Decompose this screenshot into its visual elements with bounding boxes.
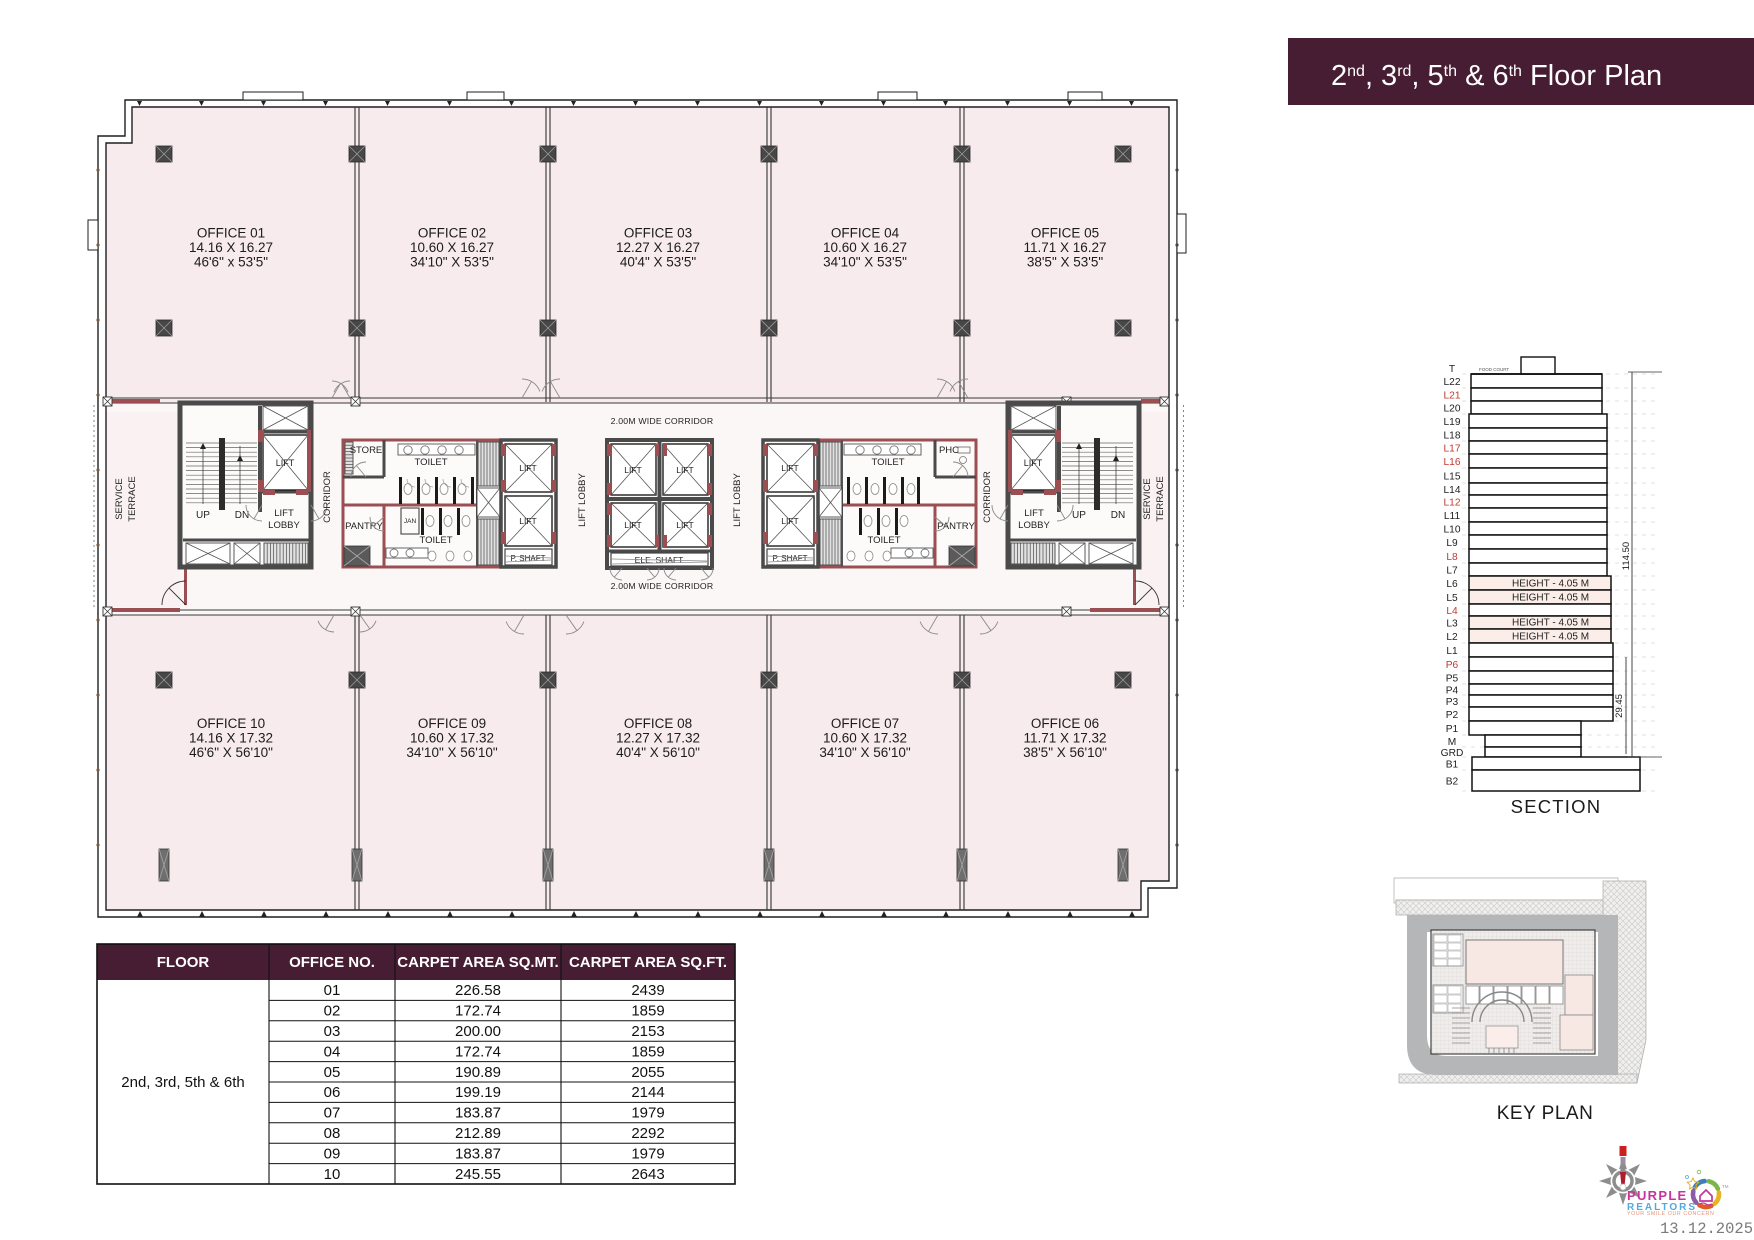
svg-text:SECTION: SECTION [1511,796,1602,817]
svg-text:05: 05 [324,1064,341,1081]
svg-text:STORE: STORE [350,445,383,456]
svg-text:172.74: 172.74 [455,1003,501,1020]
svg-text:TOILET: TOILET [871,457,904,468]
svg-text:40'4" X 53'5": 40'4" X 53'5" [620,255,697,270]
svg-text:TM: TM [1722,1184,1729,1189]
svg-text:T: T [1449,364,1455,375]
svg-text:OFFICE 08: OFFICE 08 [624,716,692,731]
svg-text:TOILET: TOILET [867,535,900,546]
svg-text:TOILET: TOILET [419,535,452,546]
svg-text:LIFT: LIFT [676,465,693,475]
svg-text:HEIGHT - 4.05 M: HEIGHT - 4.05 M [1512,579,1589,590]
svg-text:LIFT: LIFT [274,508,294,519]
svg-text:TOILET: TOILET [414,457,447,468]
svg-text:14.16 X 16.27: 14.16 X 16.27 [189,240,273,255]
svg-text:KEY PLAN: KEY PLAN [1497,1103,1594,1124]
svg-text:10.60 X 17.32: 10.60 X 17.32 [410,731,494,746]
svg-text:11.71 X 17.32: 11.71 X 17.32 [1023,731,1106,746]
svg-text:2292: 2292 [631,1125,664,1142]
svg-text:FOOD COURT: FOOD COURT [1479,367,1509,372]
svg-text:P6: P6 [1446,660,1459,671]
svg-text:HEIGHT - 4.05 M: HEIGHT - 4.05 M [1512,632,1589,643]
svg-text:L17: L17 [1444,444,1461,455]
svg-text:34'10" X 56'10": 34'10" X 56'10" [406,745,498,760]
svg-text:L10: L10 [1444,525,1461,536]
svg-text:CORRIDOR: CORRIDOR [982,471,993,523]
svg-text:LIFT: LIFT [781,516,798,526]
svg-text:P3: P3 [1446,697,1459,708]
svg-text:46'6" x 53'5": 46'6" x 53'5" [194,255,268,270]
svg-text:2144: 2144 [631,1084,664,1101]
svg-text:2.00M WIDE CORRIDOR: 2.00M WIDE CORRIDOR [611,416,714,426]
svg-text:B1: B1 [1446,760,1459,771]
svg-text:OFFICE 09: OFFICE 09 [418,716,486,731]
svg-text:2153: 2153 [631,1023,664,1040]
svg-text:SERVICE: SERVICE [1142,478,1153,520]
svg-text:10.60 X 16.27: 10.60 X 16.27 [823,240,907,255]
svg-text:14.16 X 17.32: 14.16 X 17.32 [189,731,273,746]
svg-text:2.00M WIDE CORRIDOR: 2.00M WIDE CORRIDOR [611,581,714,591]
svg-text:06: 06 [324,1084,341,1101]
svg-text:OFFICE NO.: OFFICE NO. [289,954,375,971]
svg-text:10.60 X 16.27: 10.60 X 16.27 [410,240,494,255]
svg-text:LIFT: LIFT [676,520,693,530]
svg-text:UP: UP [196,510,210,521]
svg-text:OFFICE 07: OFFICE 07 [831,716,899,731]
svg-text:TERRACE: TERRACE [127,476,138,521]
svg-text:08: 08 [324,1125,341,1142]
svg-text:P5: P5 [1446,674,1459,685]
svg-text:12.27 X 17.32: 12.27 X 17.32 [616,731,700,746]
svg-text:LIFT: LIFT [519,463,536,473]
svg-text:OFFICE 01: OFFICE 01 [197,226,265,241]
svg-text:L5: L5 [1446,593,1458,604]
svg-text:CARPET AREA SQ.MT.: CARPET AREA SQ.MT. [397,954,558,971]
svg-text:OFFICE 05: OFFICE 05 [1031,226,1099,241]
svg-text:JAN: JAN [404,518,417,525]
svg-text:LIFT LOBBY: LIFT LOBBY [577,473,588,527]
svg-text:07: 07 [324,1105,341,1122]
svg-text:LIFT: LIFT [519,516,536,526]
svg-text:1979: 1979 [631,1145,664,1162]
svg-text:DN: DN [1111,510,1125,521]
svg-text:1859: 1859 [631,1003,664,1020]
svg-text:LIFT: LIFT [624,520,641,530]
svg-text:L8: L8 [1446,552,1458,563]
svg-text:38'5" X 53'5": 38'5" X 53'5" [1027,255,1104,270]
svg-text:34'10" X 56'10": 34'10" X 56'10" [819,745,911,760]
svg-text:LIFT: LIFT [1024,458,1043,468]
svg-text:183.87: 183.87 [455,1105,501,1122]
svg-text:PURPLE: PURPLE [1627,1188,1688,1203]
svg-text:L7: L7 [1446,566,1458,577]
svg-text:172.74: 172.74 [455,1043,501,1060]
svg-text:03: 03 [324,1023,341,1040]
svg-text:PHC: PHC [939,445,959,456]
svg-text:LIFT: LIFT [624,465,641,475]
svg-text:29.45: 29.45 [1614,694,1625,718]
svg-text:L21: L21 [1444,391,1461,402]
svg-text:HEIGHT - 4.05 M: HEIGHT - 4.05 M [1512,618,1589,629]
svg-text:09: 09 [324,1145,341,1162]
svg-text:YOUR SMILE OUR CONCERN: YOUR SMILE OUR CONCERN [1627,1211,1714,1217]
svg-text:46'6" X 56'10": 46'6" X 56'10" [189,745,273,760]
svg-text:12.27 X 16.27: 12.27 X 16.27 [616,240,700,255]
svg-text:LIFT: LIFT [1024,508,1044,519]
svg-text:34'10" X 53'5": 34'10" X 53'5" [823,255,907,270]
svg-text:L12: L12 [1444,498,1461,509]
svg-text:TERRACE: TERRACE [1155,476,1166,521]
svg-text:L20: L20 [1444,404,1461,415]
svg-text:1859: 1859 [631,1043,664,1060]
svg-text:04: 04 [324,1043,341,1060]
svg-text:OFFICE 04: OFFICE 04 [831,226,900,241]
svg-text:OFFICE 06: OFFICE 06 [1031,716,1099,731]
svg-text:200.00: 200.00 [455,1023,501,1040]
svg-text:2nd, 3rd, 5th & 6th Floor Plan: 2nd, 3rd, 5th & 6th Floor Plan [1331,60,1662,92]
svg-text:L11: L11 [1444,511,1461,522]
svg-text:2643: 2643 [631,1166,664,1183]
svg-text:P1: P1 [1446,724,1459,735]
svg-text:245.55: 245.55 [455,1166,501,1183]
svg-text:LOBBY: LOBBY [268,520,300,531]
svg-text:10: 10 [324,1166,341,1183]
svg-text:OFFICE 03: OFFICE 03 [624,226,692,241]
svg-text:UP: UP [1072,510,1086,521]
svg-text:L9: L9 [1446,538,1458,549]
svg-text:LOBBY: LOBBY [1018,520,1050,531]
svg-text:38'5" X 56'10": 38'5" X 56'10" [1023,745,1107,760]
svg-text:L1: L1 [1446,646,1458,657]
svg-text:L16: L16 [1444,457,1461,468]
svg-text:2439: 2439 [631,982,664,999]
svg-text:GRD: GRD [1441,748,1464,759]
svg-text:PANTRY: PANTRY [937,521,975,532]
svg-text:114.50: 114.50 [1621,542,1632,570]
svg-text:HEIGHT - 4.05 M: HEIGHT - 4.05 M [1512,593,1589,604]
svg-text:P4: P4 [1446,686,1459,697]
svg-text:L15: L15 [1444,472,1461,483]
svg-text:OFFICE 02: OFFICE 02 [418,226,486,241]
svg-text:L3: L3 [1446,619,1458,630]
svg-text:L4: L4 [1446,606,1458,617]
svg-text:226.58: 226.58 [455,982,501,999]
svg-text:2nd, 3rd, 5th & 6th: 2nd, 3rd, 5th & 6th [121,1074,244,1091]
svg-text:10.60 X 17.32: 10.60 X 17.32 [823,731,907,746]
svg-text:LIFT: LIFT [276,458,295,468]
svg-text:CORRIDOR: CORRIDOR [322,471,333,523]
svg-text:190.89: 190.89 [455,1064,501,1081]
svg-text:1979: 1979 [631,1105,664,1122]
svg-text:M: M [1448,737,1457,748]
svg-text:212.89: 212.89 [455,1125,501,1142]
svg-text:L18: L18 [1444,431,1461,442]
svg-text:L6: L6 [1446,579,1458,590]
svg-text:11.71 X 16.27: 11.71 X 16.27 [1023,240,1106,255]
svg-text:B2: B2 [1446,777,1459,788]
svg-text:CARPET AREA SQ.FT.: CARPET AREA SQ.FT. [569,954,727,971]
svg-text:L2: L2 [1446,632,1458,643]
svg-text:01: 01 [324,982,341,999]
svg-text:34'10" X 53'5": 34'10" X 53'5" [410,255,494,270]
svg-text:40'4" X 56'10": 40'4" X 56'10" [616,745,700,760]
svg-text:LIFT LOBBY: LIFT LOBBY [732,473,743,527]
svg-text:P2: P2 [1446,710,1459,721]
svg-text:13.12.2025: 13.12.2025 [1660,1220,1753,1238]
svg-text:SERVICE: SERVICE [114,478,125,520]
svg-text:02: 02 [324,1003,341,1020]
svg-text:199.19: 199.19 [455,1084,501,1101]
svg-text:FLOOR: FLOOR [157,954,210,971]
svg-text:L19: L19 [1444,417,1461,428]
svg-text:LIFT: LIFT [781,463,798,473]
svg-text:183.87: 183.87 [455,1145,501,1162]
svg-text:L14: L14 [1444,485,1461,496]
svg-text:2055: 2055 [631,1064,664,1081]
svg-text:OFFICE 10: OFFICE 10 [197,716,265,731]
svg-text:L22: L22 [1444,377,1461,388]
